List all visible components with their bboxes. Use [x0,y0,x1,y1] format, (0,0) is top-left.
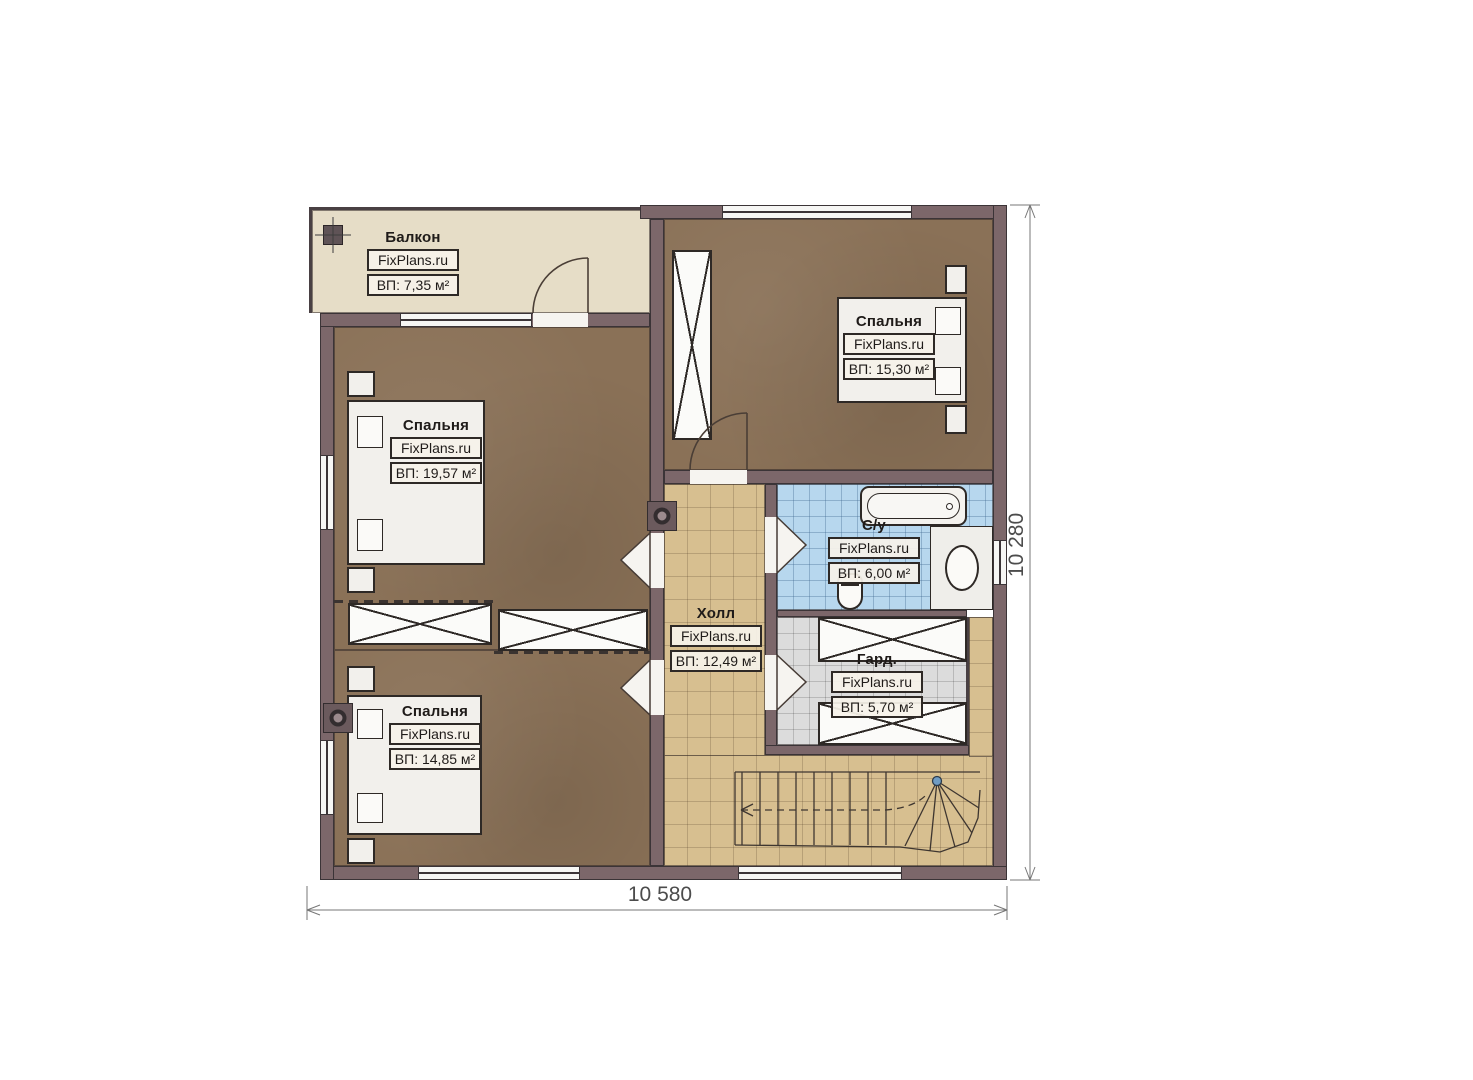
pillow [357,416,383,448]
column-marker-balcony [323,225,343,245]
room-brand: FixPlans.ru [670,625,762,647]
chimney-block-left-wall [323,703,353,733]
room-label-balcony: Балкон FixPlans.ru ВП: 7,35 м² [364,229,462,299]
nightstand [945,405,967,434]
window-right-bathroom [993,540,1007,585]
window-left-top-bedroom [320,455,334,530]
door-opening-top-right-bedroom [690,470,747,484]
wall-interior-bath-wardrobe [777,610,967,617]
room-area: ВП: 15,30 м² [843,358,935,380]
room-brand: FixPlans.ru [367,249,459,271]
window-bottom-stairs [738,866,902,880]
dimension-width-label: 10 580 [628,883,692,906]
door-opening-wardrobe [765,655,777,710]
chimney-block-hall [647,501,677,531]
wardrobe-unit-top-right-bedroom [672,250,712,440]
window-balcony-wall [400,313,532,327]
room-area: ВП: 12,49 м² [670,650,762,672]
room-area: ВП: 14,85 м² [389,748,481,770]
chimney-ring [654,508,671,525]
room-title: Гард. [857,651,897,668]
nightstand [347,567,375,593]
nightstand [347,666,375,692]
room-brand: FixPlans.ru [390,437,482,459]
wardrobe-unit-divider-right [498,609,648,651]
door-opening-bathroom [765,517,777,573]
chimney-ring [330,710,347,727]
room-label-bedroom-bottom-left: Спальня FixPlans.ru ВП: 14,85 м² [386,703,484,773]
window-bottom-bedroom [418,866,580,880]
sink [945,545,979,591]
floor-plan-page: Балкон FixPlans.ru ВП: 7,35 м² Спальня F… [0,0,1473,1080]
plan-canvas: Балкон FixPlans.ru ВП: 7,35 м² Спальня F… [307,205,1007,880]
pillow [357,709,383,739]
pillow [357,519,383,551]
room-label-bedroom-top-left: Спальня FixPlans.ru ВП: 19,57 м² [387,417,485,487]
stair-area-floor [664,755,993,866]
room-balcony-floor [309,207,650,313]
room-label-bathroom: С/у FixPlans.ru ВП: 6,00 м² [825,517,923,587]
room-brand: FixPlans.ru [389,723,481,745]
room-brand: FixPlans.ru [843,333,935,355]
room-area: ВП: 19,57 м² [390,462,482,484]
sink-counter [930,526,993,610]
room-title: С/у [862,517,886,534]
wardrobe-unit-divider-left [348,603,492,645]
dimension-bottom [307,886,1007,920]
nightstand [945,265,967,294]
wall-interior-wardrobe-stairs [765,745,969,755]
hall-side-strip-floor [969,617,993,757]
dimension-right [1010,205,1040,880]
door-opening-bottom-left-bedroom [650,660,664,715]
room-brand: FixPlans.ru [828,537,920,559]
bathtub-drain [946,503,953,510]
pillow [935,307,961,335]
dimension-height-label: 10 280 [1005,513,1028,577]
wall-dashed-bedroom-divider-right [494,651,650,654]
room-brand: FixPlans.ru [831,671,923,693]
door-opening-top-left-bedroom [650,533,664,588]
room-title: Балкон [385,229,440,246]
room-area: ВП: 5,70 м² [831,696,923,718]
room-title: Спальня [856,313,922,330]
room-title: Спальня [403,417,469,434]
room-title: Спальня [402,703,468,720]
window-top-bedroom [722,205,912,219]
room-label-hall: Холл FixPlans.ru ВП: 12,49 м² [667,605,765,675]
window-left-bottom-bedroom [320,740,334,815]
pillow [357,793,383,823]
room-label-bedroom-top-right: Спальня FixPlans.ru ВП: 15,30 м² [840,313,938,383]
room-area: ВП: 6,00 м² [828,562,920,584]
room-area: ВП: 7,35 м² [367,274,459,296]
nightstand [347,838,375,864]
door-opening-balcony [533,313,588,327]
room-title: Холл [697,605,735,622]
room-label-wardrobe: Гард. FixPlans.ru ВП: 5,70 м² [828,651,926,721]
nightstand [347,371,375,397]
pillow [935,367,961,395]
